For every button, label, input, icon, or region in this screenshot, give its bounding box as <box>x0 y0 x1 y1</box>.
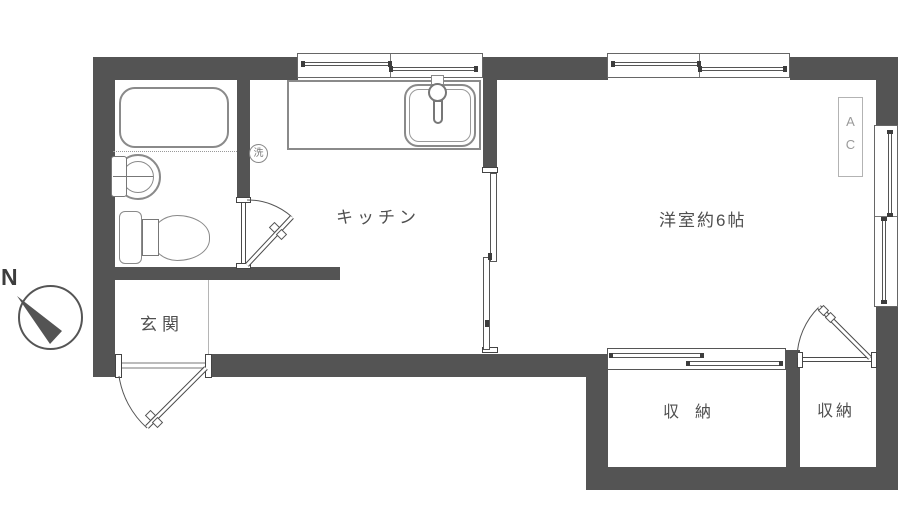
wall-right-top <box>876 57 898 125</box>
wall-top-left <box>93 57 298 80</box>
wall-right-bottom <box>876 307 898 490</box>
sash-cap <box>698 66 702 72</box>
wall-left <box>93 57 115 377</box>
entrance-door-jamb <box>205 354 212 378</box>
sash-cap <box>474 66 478 72</box>
compass-circle <box>18 285 83 350</box>
sash-cap <box>389 66 393 72</box>
window-sash <box>700 67 786 71</box>
sash-cap <box>779 361 783 366</box>
window-western-room <box>607 53 790 78</box>
sash-cap <box>783 66 787 72</box>
wall-bottom-left-a <box>93 354 117 377</box>
closet-door-panel <box>688 361 781 366</box>
sash-cap <box>301 61 305 67</box>
wall-between-closets <box>786 350 800 490</box>
washing-machine-symbol: 洗 <box>249 144 268 163</box>
floor-plan: 洗 A C N <box>0 0 900 523</box>
bathroom-partition-line <box>113 151 237 152</box>
sliding-door-handle <box>488 253 492 260</box>
sash-cap <box>887 213 893 217</box>
sliding-door-handle <box>485 320 489 327</box>
window-sash <box>391 67 477 71</box>
sash-cap <box>887 130 893 134</box>
bathroom-door-jamb <box>236 263 251 269</box>
ac-letter-c: C <box>846 137 855 152</box>
closet-sliding-door <box>607 348 786 370</box>
washer-label: 洗 <box>254 148 264 159</box>
sash-cap <box>881 300 887 304</box>
sash-cap <box>686 361 690 366</box>
bathroom-door-jamb <box>236 197 251 203</box>
washbasin-line <box>113 176 153 177</box>
kitchen-label: キッチン <box>336 203 420 228</box>
wall-kitchen-divider-stub <box>483 80 497 168</box>
sliding-door-panel <box>483 257 490 350</box>
toilet-tank-icon <box>119 211 142 264</box>
sash-cap <box>609 353 613 358</box>
window-sash <box>303 62 391 66</box>
storage-right-label: 収納 <box>817 397 855 421</box>
ac-letter-a: A <box>846 114 855 129</box>
closet-door-panel <box>611 353 703 358</box>
sash-cap <box>881 217 887 221</box>
wall-top-middle <box>483 57 608 80</box>
wall-bottom-left-b <box>206 354 608 377</box>
western-room-label: 洋室約6帖 <box>659 206 746 231</box>
sash-cap <box>611 61 615 67</box>
window-right-wall <box>874 125 898 307</box>
entrance-door <box>119 363 206 428</box>
entrance-step-line <box>208 280 209 354</box>
sash-cap <box>700 353 704 358</box>
window-sash <box>882 217 886 303</box>
compass-north-label: N <box>1 264 18 291</box>
window-sash <box>888 131 892 217</box>
faucet-spout <box>433 100 443 124</box>
closet-door-jamb <box>871 352 877 368</box>
wall-bathroom-south <box>113 267 340 280</box>
wall-bathroom-east <box>237 80 250 198</box>
window-sash <box>613 62 700 66</box>
bathroom-door <box>244 200 293 265</box>
entrance-door-jamb <box>115 354 122 378</box>
storage-right-door <box>797 306 871 360</box>
bathtub-icon <box>119 87 229 148</box>
window-kitchen <box>297 53 483 78</box>
wall-bottom-right <box>586 467 898 490</box>
toilet-seat-hinge <box>142 219 159 256</box>
toilet-bowl-icon <box>152 215 210 261</box>
closet-door-jamb <box>797 352 803 368</box>
air-conditioner-icon: A C <box>838 97 863 177</box>
entrance-label: 玄関 <box>140 310 184 335</box>
sliding-door-panel <box>490 173 497 262</box>
storage-left-label: 収 納 <box>663 398 711 422</box>
